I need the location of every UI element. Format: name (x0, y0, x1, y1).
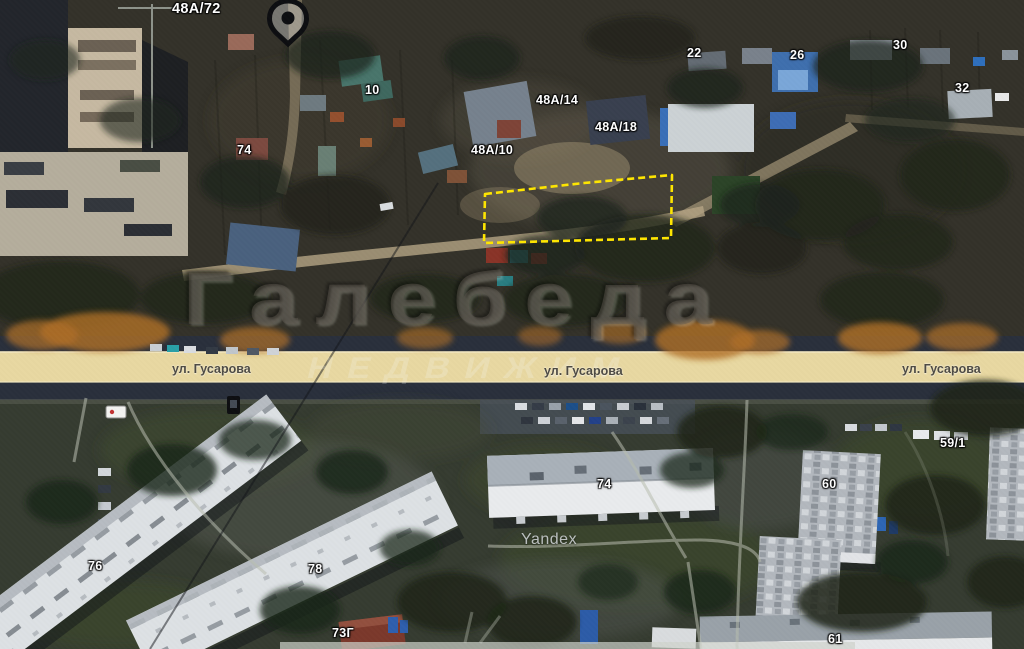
named-road-band (0, 352, 1024, 382)
gate-icon (227, 396, 240, 414)
map-viewport[interactable]: Галебеда НЕДВИЖИМ Yandex ул. Гусароваул.… (0, 0, 1024, 649)
satellite-imagery[interactable] (0, 0, 1024, 649)
bottom-road (280, 642, 855, 649)
bus-stop-sign-icon (106, 406, 126, 418)
building-right-edge (986, 427, 1024, 540)
